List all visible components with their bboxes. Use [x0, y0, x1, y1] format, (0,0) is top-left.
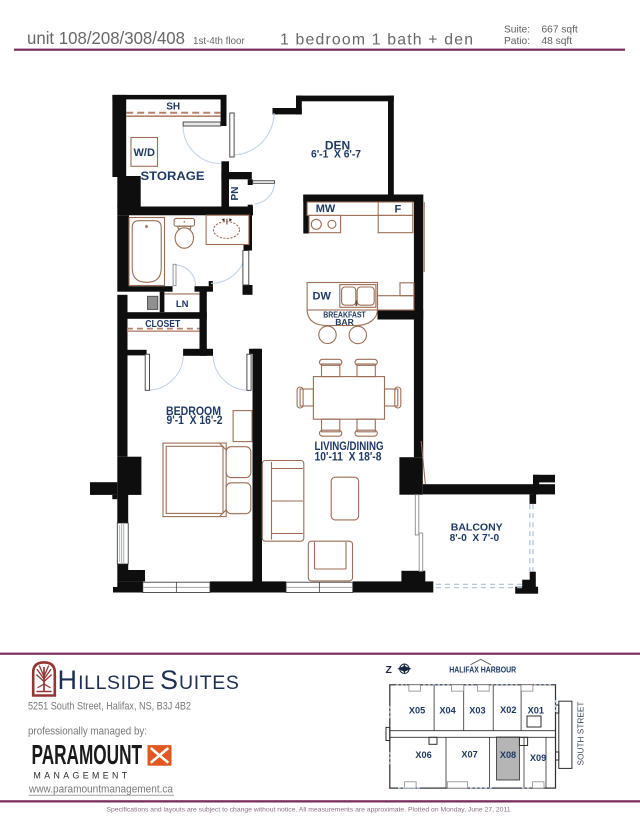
svg-text:W/D: W/D	[134, 147, 155, 159]
svg-text:48 sqft: 48 sqft	[542, 36, 573, 47]
svg-text:HALIFAX HARBOUR: HALIFAX HARBOUR	[449, 666, 516, 675]
svg-text:BALCONY: BALCONY	[451, 522, 503, 534]
svg-text:professionally managed by:: professionally managed by:	[28, 726, 147, 738]
svg-text:Suite:: Suite:	[504, 25, 530, 36]
svg-text:X01: X01	[528, 706, 544, 716]
svg-text:MW: MW	[316, 203, 336, 215]
svg-text:9'-1 X 16'-2: 9'-1 X 16'-2	[167, 415, 223, 427]
svg-text:X09: X09	[530, 753, 546, 763]
svg-text:BAR: BAR	[335, 317, 354, 327]
svg-text:X04: X04	[439, 706, 456, 716]
svg-text:SH: SH	[166, 102, 180, 113]
svg-text:6'-1 X 6'-7: 6'-1 X 6'-7	[311, 149, 361, 161]
svg-text:5251 South Street, Halifax, NS: 5251 South Street, Halifax, NS, B3J 4B2	[28, 701, 191, 713]
svg-text:STORAGE: STORAGE	[141, 169, 205, 183]
svg-text:X07: X07	[461, 749, 477, 759]
svg-text:PN: PN	[230, 187, 241, 201]
svg-text:HILLSIDESUITES: HILLSIDESUITES	[58, 665, 240, 695]
svg-text:LN: LN	[176, 299, 189, 310]
svg-text:F: F	[395, 204, 402, 216]
svg-text:8'-0 X 7'-0: 8'-0 X 7'-0	[450, 533, 500, 544]
svg-text:Z: Z	[386, 664, 393, 676]
svg-text:1st-4th floor: 1st-4th floor	[193, 36, 245, 47]
svg-text:PARAMOUNT: PARAMOUNT	[32, 739, 143, 770]
svg-text:Specifications and layouts are: Specifications and layouts are subject t…	[106, 807, 510, 814]
svg-text:CLOSET: CLOSET	[145, 318, 180, 330]
svg-text:1 bedroom 1 bath + den: 1 bedroom 1 bath + den	[280, 32, 473, 49]
svg-text:SOUTH STREET: SOUTH STREET	[576, 701, 586, 766]
svg-text:667 sqft: 667 sqft	[542, 25, 578, 36]
svg-text:MANAGEMENT: MANAGEMENT	[34, 771, 131, 781]
svg-text:X02: X02	[500, 705, 516, 715]
svg-text:X08: X08	[500, 750, 516, 760]
svg-text:X05: X05	[409, 706, 425, 716]
svg-text:10'-11 X 18'-8: 10'-11 X 18'-8	[315, 450, 382, 464]
svg-text:Patio:: Patio:	[504, 36, 530, 47]
svg-text:X06: X06	[415, 750, 431, 760]
svg-text:DW: DW	[313, 291, 332, 303]
svg-text:unit 108/208/308/408: unit 108/208/308/408	[27, 28, 185, 48]
svg-text:www.paramountmanagement.ca: www.paramountmanagement.ca	[28, 784, 174, 796]
svg-text:X03: X03	[469, 706, 485, 716]
